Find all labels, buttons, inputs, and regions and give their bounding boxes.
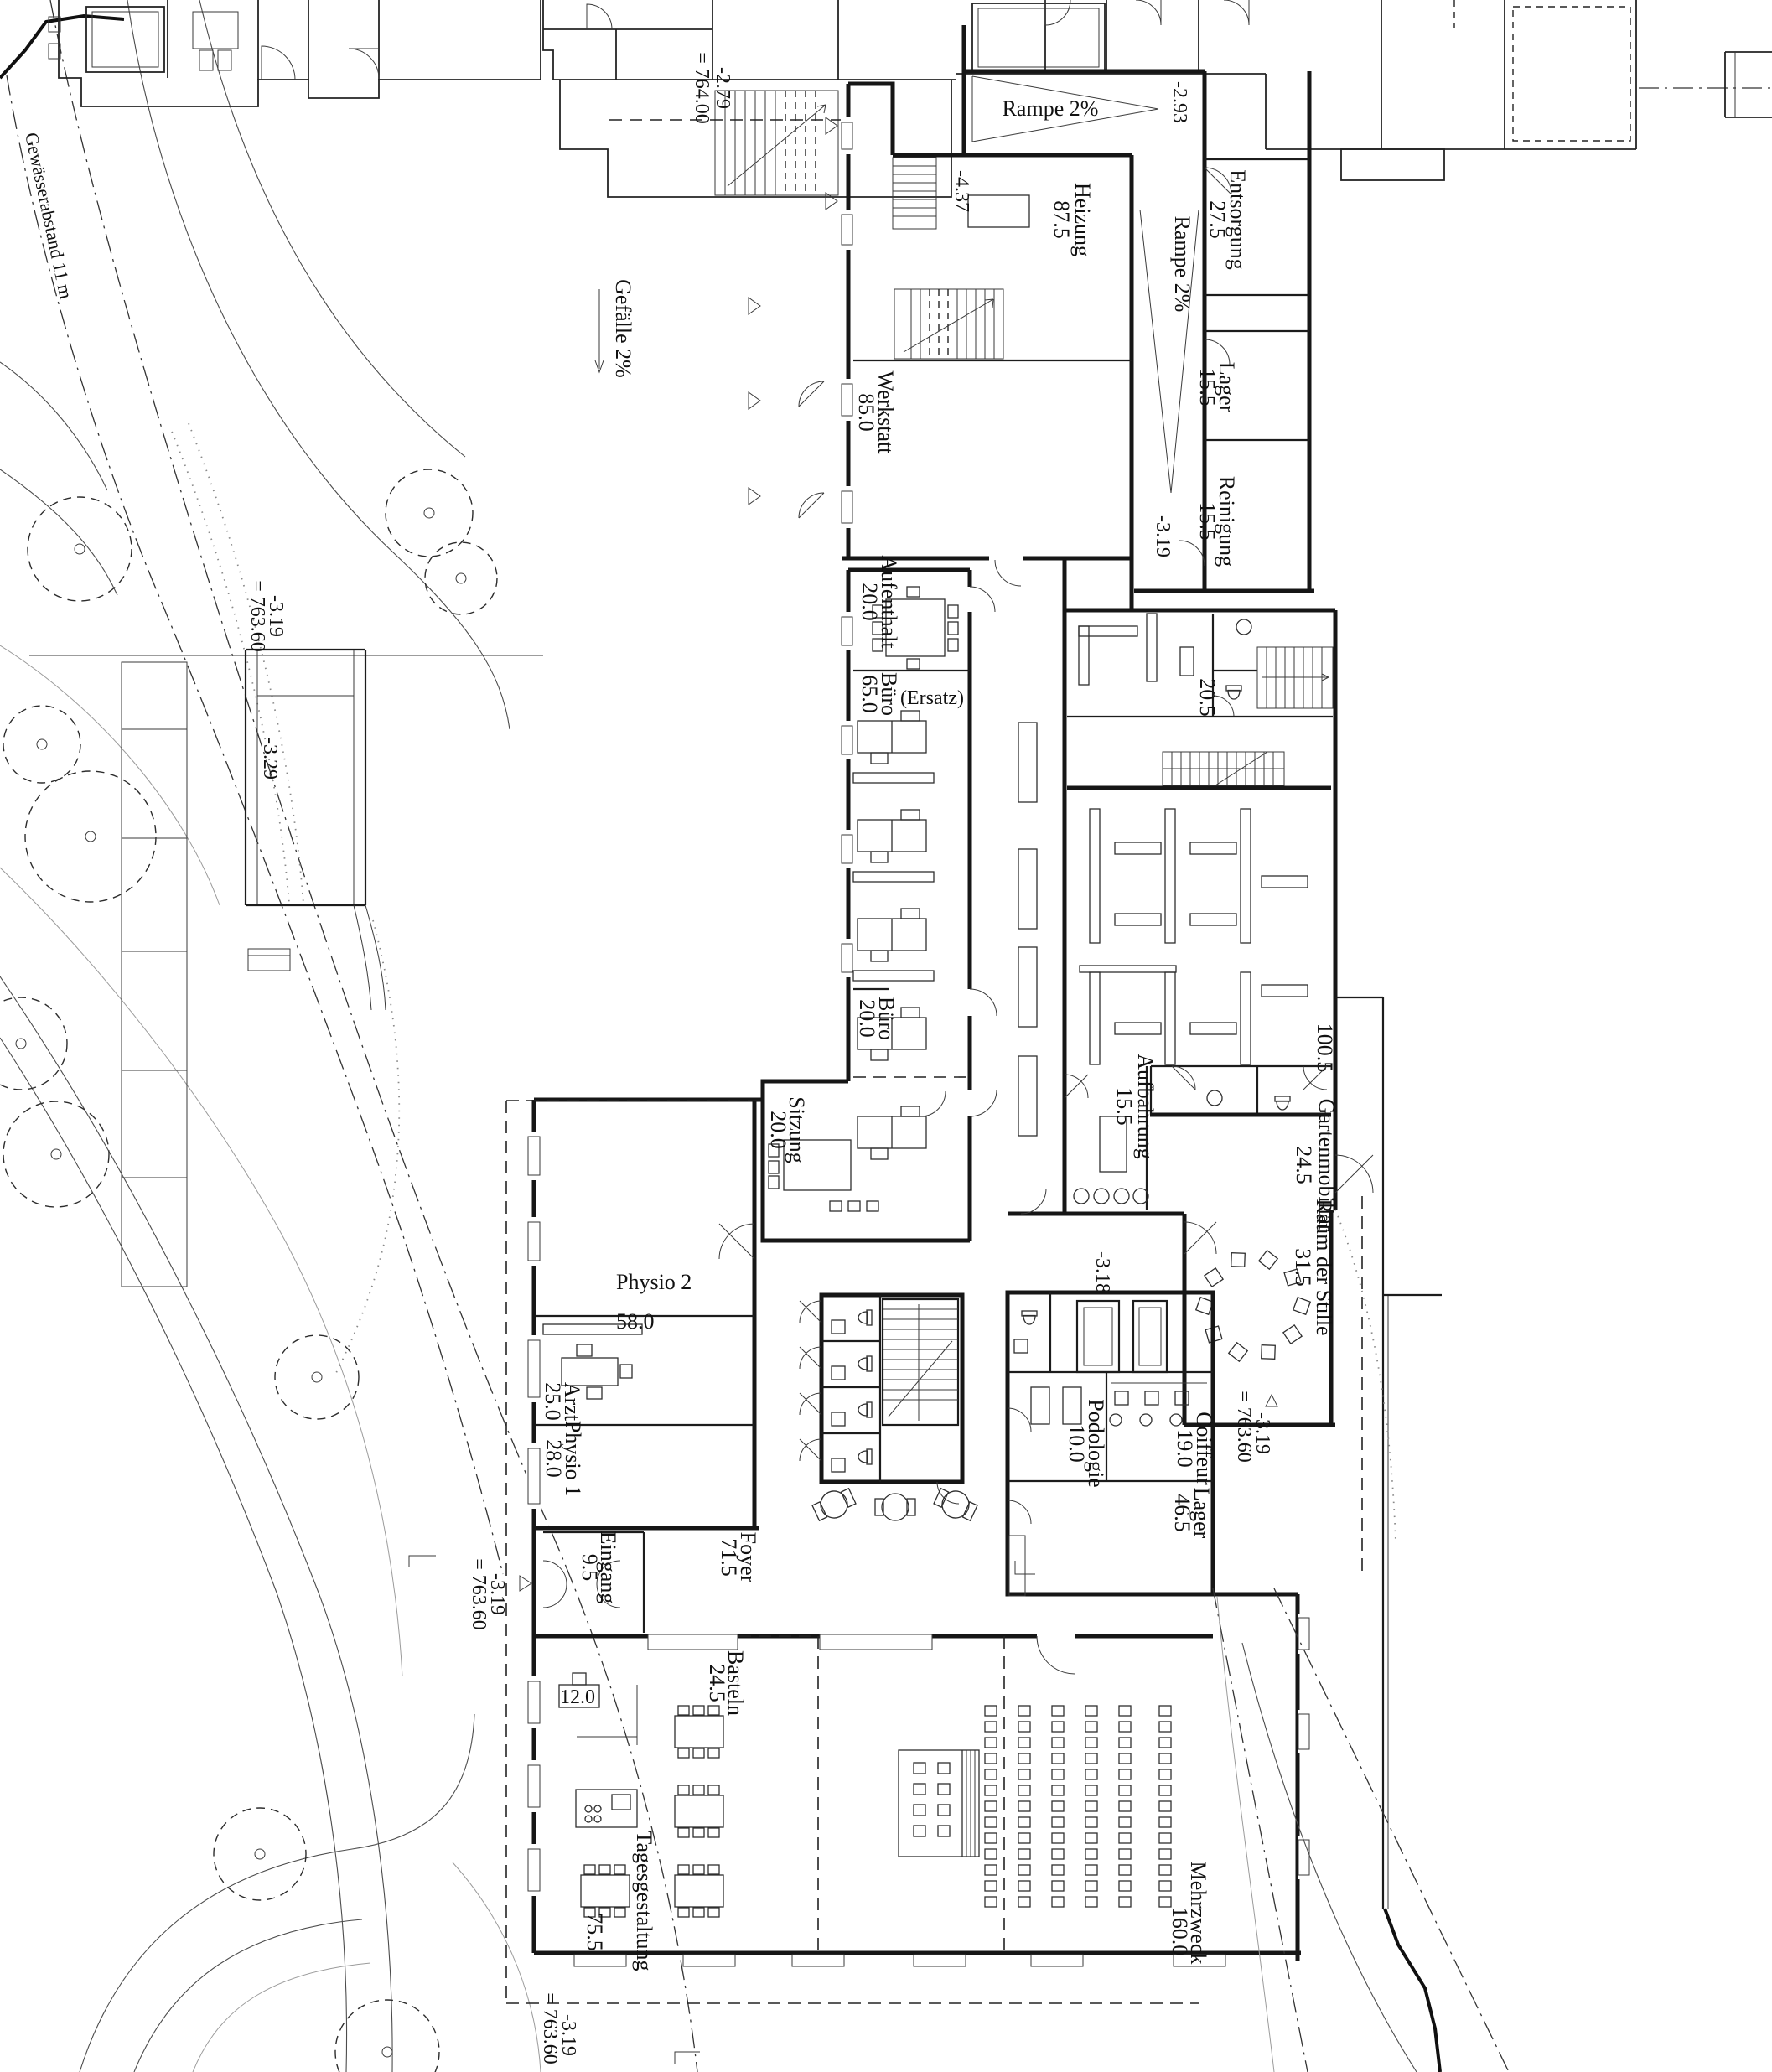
- door-arc: [719, 1224, 754, 1259]
- slope-label: Gefälle 2%: [611, 279, 635, 378]
- sink-icon: [832, 1366, 845, 1380]
- room-area: 15.5: [1195, 368, 1220, 407]
- table-group: [675, 1865, 723, 1917]
- entry-triangle-icon: [520, 1576, 531, 1591]
- east-site: [1213, 997, 1509, 2072]
- water-setback-label: Gewässerabstand 11 m: [21, 131, 76, 301]
- trees: [0, 469, 497, 2072]
- section-corner-mark: [409, 1556, 436, 1567]
- table-group: [581, 1865, 630, 1917]
- bridge-levels: -3.19 = 763.60 -3.29: [246, 580, 287, 780]
- table-group: [675, 1706, 723, 1758]
- sink-icon: [1014, 1339, 1028, 1353]
- room-area: 19.0: [1173, 1429, 1197, 1468]
- level-value: = 764.00: [691, 52, 712, 124]
- door-arc: [800, 1393, 821, 1415]
- section-corner-mark: [675, 2052, 700, 2064]
- tree-icon: [425, 542, 497, 614]
- room-area: 20.0: [855, 999, 879, 1038]
- entrance-mat: [820, 1634, 932, 1650]
- physio-block: Physio 2 58.0 Arzt 25.0 Physio 1 28.0 Ei…: [468, 1100, 763, 1953]
- room-area: 25.0: [541, 1382, 565, 1421]
- room-note: (Ersatz): [900, 687, 964, 709]
- door-arc: [1008, 1500, 1031, 1524]
- table-group: [675, 1785, 723, 1837]
- room-area: 71.5: [717, 1538, 741, 1577]
- desk-group: [858, 711, 926, 764]
- room-area: 100.5: [1313, 1023, 1337, 1073]
- room-area: 75.5: [583, 1913, 607, 1951]
- door-arc: [800, 1301, 821, 1323]
- piano: [899, 1750, 979, 1857]
- door-arc: [970, 989, 997, 1016]
- sink-icon: [1236, 619, 1251, 635]
- door-arc: [262, 46, 295, 80]
- door-arc: [1179, 541, 1205, 566]
- entry-triangle-icon: [749, 392, 760, 409]
- door-arc: [1224, 0, 1249, 25]
- door-arc: [349, 49, 379, 79]
- stair-heizung-nw: [893, 158, 936, 229]
- desk-group: [858, 810, 926, 862]
- sink-icon: [832, 1458, 845, 1472]
- level-triangle-icon: [1266, 1395, 1277, 1406]
- room-area: 10.0: [1065, 1424, 1089, 1463]
- room-label: Rampe 2%: [1003, 96, 1099, 121]
- entry-triangle-icon: [749, 298, 760, 314]
- toilet-icon: [1275, 1096, 1290, 1110]
- terrace-level-marker: -3.19 = 763.60: [1233, 1391, 1277, 1463]
- room-area: 9.5: [578, 1554, 602, 1582]
- room-name: Physio 2: [616, 1270, 692, 1294]
- room-area: 12.0: [560, 1686, 595, 1708]
- stair-core: [883, 1299, 958, 1425]
- room-area: 24.5: [705, 1664, 729, 1702]
- toilet-icon: [1226, 686, 1241, 699]
- toilet-icon: [858, 1356, 872, 1371]
- level-value: -3.18: [1091, 1251, 1113, 1293]
- existing-building-northwest: [49, 0, 541, 106]
- door-arc: [1021, 1189, 1046, 1214]
- door-arc: [1335, 1155, 1373, 1193]
- elevator: [1133, 1301, 1167, 1372]
- room-area: 46.5: [1170, 1494, 1194, 1532]
- boiler: [968, 195, 1029, 227]
- desk-group: [858, 1106, 926, 1159]
- door-arc: [800, 1439, 821, 1461]
- floor-plan-canvas: -2.79 = 764.00 Rampe 2% -2.93: [0, 0, 1772, 2072]
- sanitary-core: [800, 1295, 980, 1526]
- toilet-icon: [858, 1402, 872, 1417]
- treatment-bed: [1063, 1387, 1081, 1424]
- door-arc: [800, 1347, 821, 1369]
- level-value: -2.93: [1168, 81, 1190, 123]
- sink-icon: [832, 1412, 845, 1426]
- room-205: 20.5: [1079, 614, 1257, 717]
- room-area: 20.0: [766, 1111, 790, 1149]
- desk-group: [858, 909, 926, 961]
- door-arc: [1008, 1408, 1031, 1432]
- storage-shelves: [1080, 809, 1308, 1064]
- mehrzweck-chairs: [985, 1706, 1171, 1907]
- room-area: 65.0: [858, 675, 882, 713]
- level-value: -3.29: [259, 738, 281, 780]
- site-terrain: [0, 0, 697, 2072]
- door-arc: [1205, 339, 1230, 365]
- sink-icon: [832, 1320, 845, 1334]
- tree-icon: [386, 469, 473, 557]
- slope-annotation: Gefälle 2%: [595, 279, 635, 378]
- wc-strip: [1151, 1066, 1331, 1115]
- room-area: 24.5: [1292, 1146, 1316, 1184]
- level-value: -2.79: [712, 67, 733, 109]
- stair-double-run: [1163, 752, 1284, 785]
- room-area: 20.0: [858, 583, 882, 621]
- room-area: 31.5: [1291, 1248, 1315, 1287]
- tree-icon: [275, 1335, 359, 1419]
- room-area: 28.0: [541, 1439, 566, 1478]
- stair-heizung-south: [894, 289, 1003, 359]
- tree-icon: [3, 1101, 109, 1207]
- tree-icon: [335, 2000, 439, 2072]
- room-name: Tagesgestaltung: [632, 1831, 656, 1971]
- hall-block: 12.0 Basteln 24.5 Tagesgestaltung 75.5: [534, 1594, 1311, 1971]
- door-arc: [1184, 1222, 1216, 1254]
- eingang: [520, 1532, 644, 1633]
- door-arc: [1065, 1075, 1088, 1098]
- entrance-mat: [1009, 1536, 1025, 1596]
- canopy-dashed: [1513, 7, 1630, 141]
- door-arc: [1172, 1066, 1195, 1090]
- room-area: 15.5: [1112, 1087, 1137, 1126]
- room-area: 85.0: [854, 393, 878, 432]
- toilet-icon: [1022, 1311, 1037, 1324]
- tree-icon: [3, 706, 80, 783]
- construction-boundary: [409, 1101, 1362, 2064]
- room-area: 20.5: [1195, 678, 1220, 717]
- level-value: = 763.60: [1233, 1391, 1255, 1463]
- level-marker-existing: -2.79 = 764.00: [609, 52, 847, 124]
- door-arc: [799, 381, 824, 407]
- toilet-icon: [858, 1310, 872, 1325]
- door-arc: [543, 1561, 567, 1608]
- office-wing: Aufenthalt 20.0 Büro 65.0 (Ersatz) Büro …: [763, 555, 1037, 1241]
- sink-icon: [1207, 1090, 1222, 1106]
- door-arc: [799, 493, 824, 518]
- door-arc: [587, 4, 612, 29]
- tree-icon: [0, 997, 67, 1090]
- room-area: 58.0: [616, 1309, 655, 1334]
- toilet-icon: [858, 1449, 872, 1464]
- room-area: 87.5: [1049, 200, 1074, 239]
- east-block: 20.5: [1008, 558, 1373, 1463]
- north-wing: Rampe 2% -2.93 Heizung: [749, 0, 1314, 610]
- room-label: Rampe 2%: [1170, 216, 1194, 313]
- tree-icon: [28, 497, 132, 601]
- level-value: = 763.60: [246, 580, 268, 652]
- tree-icon: [25, 771, 156, 902]
- door-arc: [970, 1090, 997, 1116]
- door-arc: [995, 560, 1021, 586]
- tree-icon: [214, 1808, 306, 1900]
- level-value: -3.19: [1152, 515, 1174, 557]
- room-area: 15.5: [1195, 502, 1220, 541]
- entrance-mat: [648, 1634, 738, 1650]
- level-value: = 763.60: [539, 1992, 561, 2064]
- room-area: 27.5: [1205, 200, 1230, 239]
- door-arc: [920, 1091, 946, 1116]
- door-arc: [970, 587, 995, 612]
- entry-triangle-icon: [749, 488, 760, 505]
- stair-east: [1257, 647, 1333, 708]
- door-arc: [1136, 0, 1161, 25]
- room-area: 160.0: [1168, 1907, 1192, 1956]
- level-value: = 763.60: [468, 1558, 490, 1630]
- level-value: -4.37: [951, 170, 972, 212]
- door-arc: [1037, 1636, 1075, 1674]
- foyer-chairs: [810, 1484, 979, 1525]
- treatment-bed: [1031, 1387, 1049, 1424]
